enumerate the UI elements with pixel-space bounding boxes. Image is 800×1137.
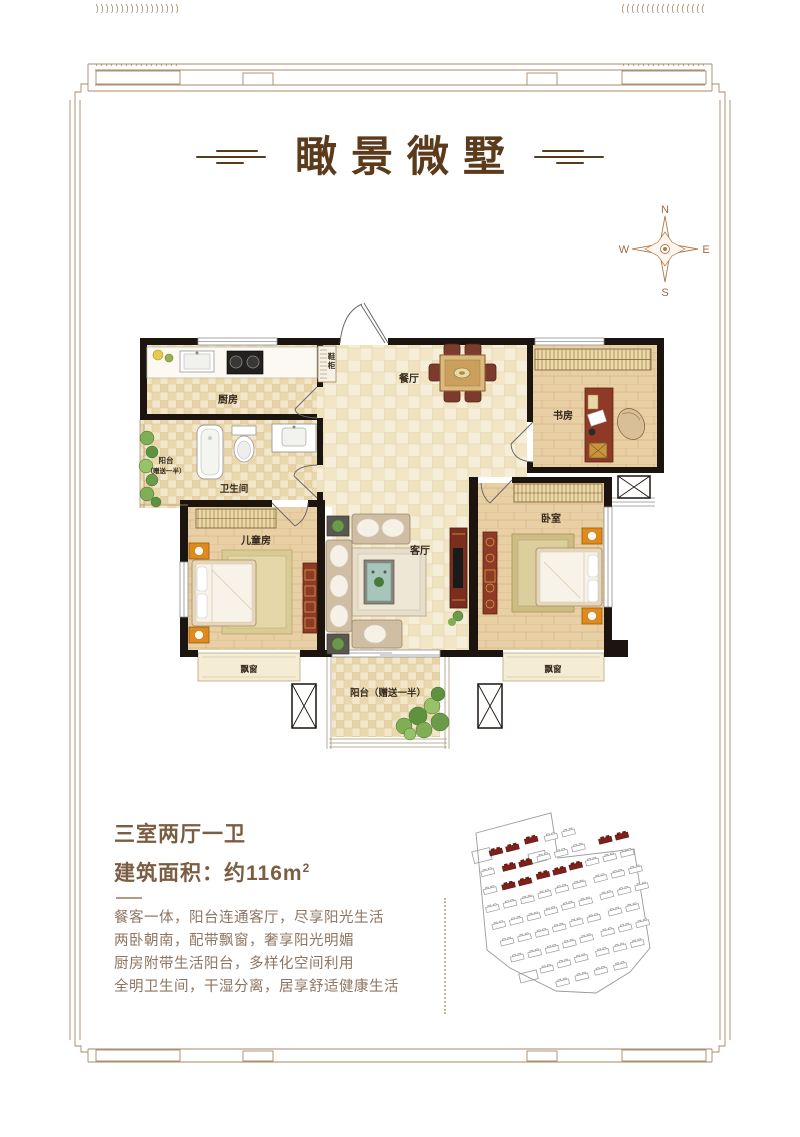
dotted-separator xyxy=(444,898,446,1014)
shoe-cabinet: 鞋 柜 xyxy=(318,346,336,382)
title-flourish-right xyxy=(533,145,605,169)
label-dining: 餐厅 xyxy=(398,372,419,385)
poster-page: { "title": { "text": "瞰景微墅" }, "compass"… xyxy=(0,0,800,1137)
label-bedroom: 卧室 xyxy=(541,512,561,525)
layout-heading: 三室两厅一卫 xyxy=(114,818,444,848)
label-balcony-left-2: （赠送一半） xyxy=(147,466,186,475)
compass-north-label: N xyxy=(661,204,669,216)
label-living: 客厅 xyxy=(409,544,430,557)
label-bay-window-left: 飘窗 xyxy=(240,664,258,674)
label-kitchen: 厨房 xyxy=(218,393,238,406)
feature-line: 两卧朝南，配带飘窗，奢享阳光明媚 xyxy=(114,930,444,953)
label-study: 书房 xyxy=(553,409,573,422)
tv-screen xyxy=(453,548,463,588)
info-block: 三室两厅一卫 建筑面积：约116m2 餐客一体，阳台连通客厅，尽享阳光生活 两卧… xyxy=(114,818,444,999)
label-kids-room: 儿童房 xyxy=(240,534,271,547)
compass-rose: N E S W xyxy=(615,202,715,302)
compass-east-label: E xyxy=(702,244,709,256)
label-shoe-cabinet-2: 柜 xyxy=(327,360,336,370)
label-bathroom: 卫生间 xyxy=(220,483,249,495)
label-bay-window-right: 飘窗 xyxy=(544,664,562,674)
site-plan xyxy=(450,785,700,1045)
feature-line: 全明卫生间，干湿分离，居享舒适健康生活 xyxy=(114,976,444,999)
page-title: 瞰景微墅 xyxy=(281,136,519,178)
title-flourish-left xyxy=(195,145,267,169)
heading-divider xyxy=(116,897,142,899)
feature-line: 餐客一体，阳台连通客厅，尽享阳光生活 xyxy=(114,907,444,930)
floorplan: 鞋 柜 xyxy=(125,292,695,767)
compass-west-label: W xyxy=(619,244,630,256)
label-shoe-cabinet-1: 鞋 xyxy=(328,351,336,361)
feature-line: 厨房附带生活阳台，多样化空间利用 xyxy=(114,953,444,976)
area-heading: 建筑面积：约116m2 xyxy=(114,857,444,887)
kitchen-counter xyxy=(147,347,317,378)
label-balcony-bottom: 阳台（赠送一半） xyxy=(350,687,426,699)
toilet xyxy=(232,426,256,435)
label-balcony-left-1: 阳台 xyxy=(159,455,174,465)
